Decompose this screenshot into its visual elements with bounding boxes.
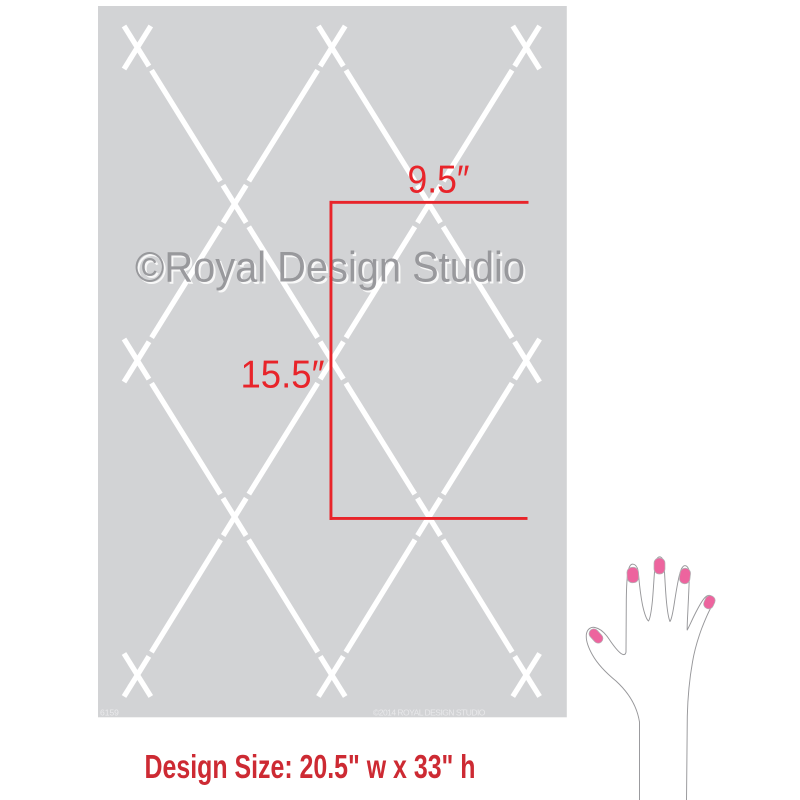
- svg-text:9.5″: 9.5″: [408, 159, 470, 202]
- svg-text:©2014 ROYAL DESIGN STUDIO: ©2014 ROYAL DESIGN STUDIO: [373, 708, 486, 718]
- svg-text:6159: 6159: [100, 708, 119, 718]
- svg-text:Design Size: 20.5" w x 33" h: Design Size: 20.5" w x 33" h: [145, 748, 476, 785]
- svg-text:15.5″: 15.5″: [241, 354, 325, 397]
